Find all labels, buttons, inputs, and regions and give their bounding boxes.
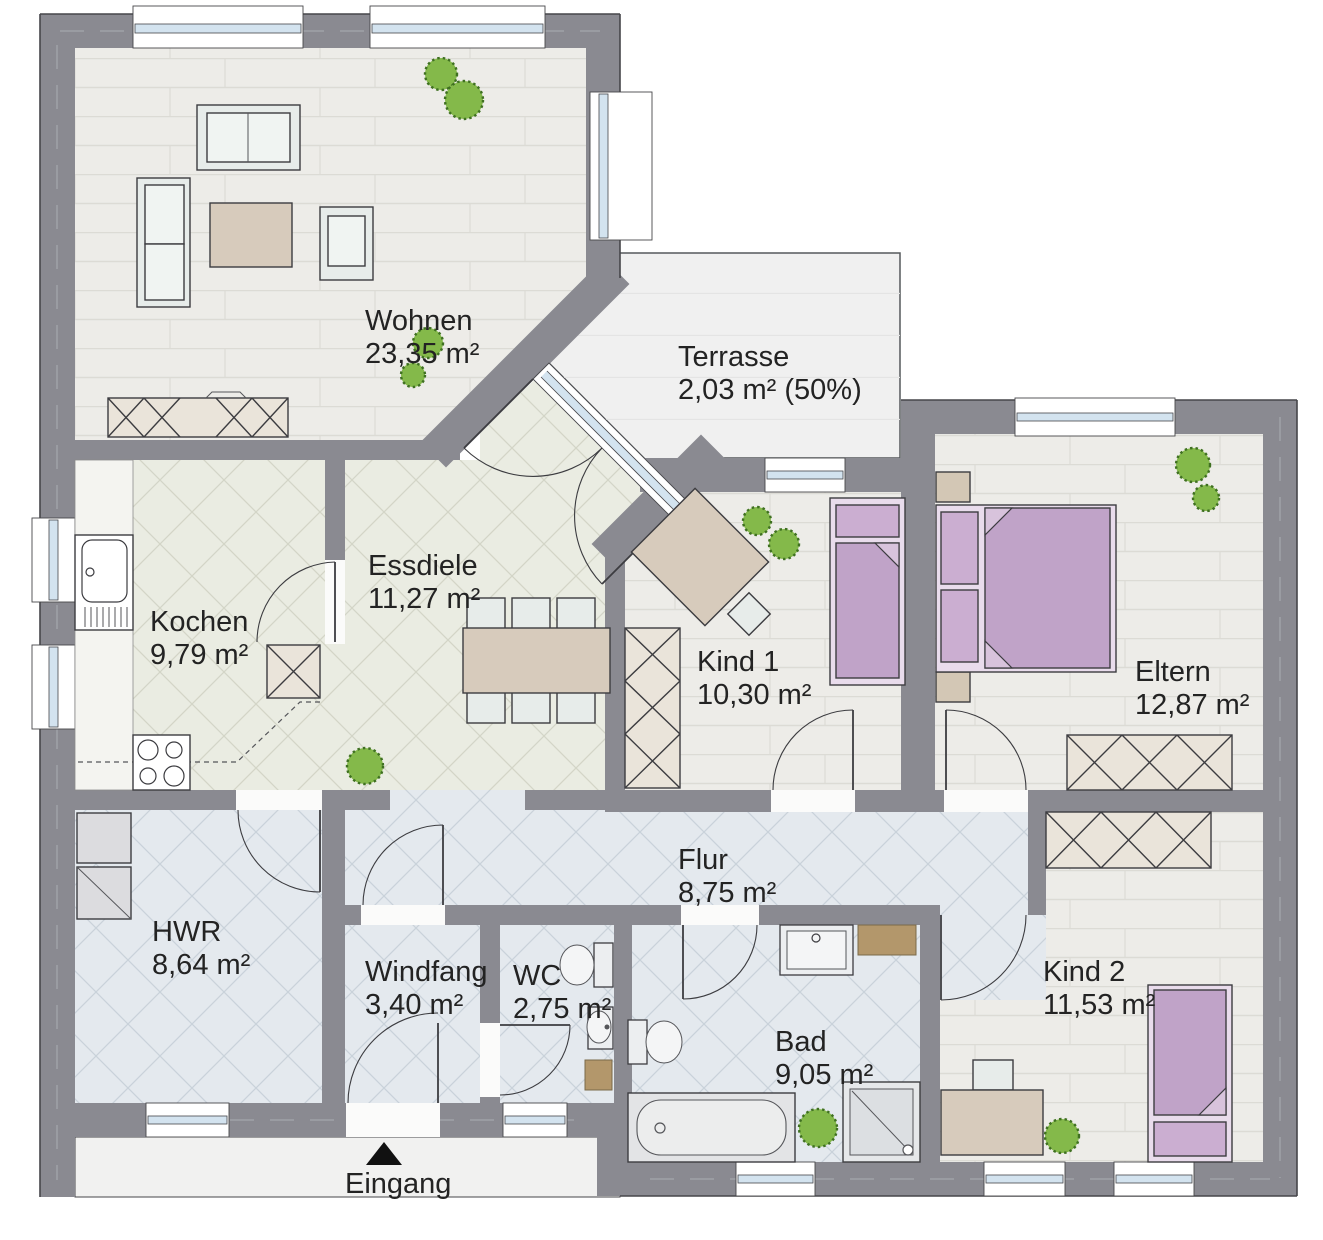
wc-toilet: [560, 943, 613, 987]
wohnen-coffee-table: [210, 203, 292, 267]
floor-plan-page: Wohnen 23,35 m² Terrasse 2,03 m² (50%) E…: [0, 0, 1323, 1240]
plant-icon: [1045, 1119, 1079, 1153]
eltern-wardrobe: [1067, 735, 1232, 790]
kind1-wardrobe: [625, 628, 680, 788]
room-area-flur: 8,75 m²: [678, 877, 777, 909]
window-wc-bottom: [503, 1103, 567, 1137]
window-wohnen-top-2: [370, 6, 545, 48]
room-area-hwr: 8,64 m²: [152, 949, 251, 981]
plant-icon: [445, 81, 483, 119]
room-label-kind2: Kind 2: [1043, 956, 1125, 988]
window-bad-bottom: [736, 1162, 815, 1196]
bad-shower: [843, 1082, 920, 1162]
room-label-wc: WC: [513, 960, 561, 992]
room-label-wohnen: Wohnen: [365, 305, 473, 337]
room-label-kochen: Kochen: [150, 606, 248, 638]
window-kind2-bottom-2: [1114, 1162, 1194, 1196]
kind2-bed: [1148, 985, 1232, 1162]
wohnen-sideboard: [108, 392, 288, 437]
room-label-windfang: Windfang: [365, 956, 488, 988]
wc-cabinet: [585, 1060, 612, 1090]
wohnen-sofa: [137, 178, 190, 307]
window-kochen-left-2: [32, 645, 75, 729]
room-area-wc: 2,75 m²: [513, 993, 612, 1025]
room-area-windfang: 3,40 m²: [365, 989, 464, 1021]
window-eltern-top: [1015, 398, 1175, 436]
entrance-label: Eingang: [345, 1168, 451, 1200]
room-area-kochen: 9,79 m²: [150, 639, 249, 671]
essdiele-table: [463, 628, 610, 693]
kind1-bed: [830, 498, 905, 685]
kochen-stove: [133, 735, 190, 790]
room-area-kind1: 10,30 m²: [697, 679, 812, 711]
room-label-terrasse: Terrasse: [678, 341, 789, 373]
window-kind1-top: [765, 458, 845, 492]
room-area-bad: 9,05 m²: [775, 1059, 874, 1091]
window-kind2-bottom-1: [984, 1162, 1065, 1196]
window-wohnen-right: [590, 92, 652, 240]
kochen-sink: [75, 535, 133, 630]
room-label-essdiele: Essdiele: [368, 550, 478, 582]
eltern-nightstand-top: [936, 472, 970, 502]
room-area-wohnen: 23,35 m²: [365, 338, 480, 370]
wohnen-armchair: [320, 207, 373, 280]
hwr-appliance-1: [77, 813, 131, 863]
room-label-kind1: Kind 1: [697, 646, 779, 678]
room-area-kind2: 11,53 m²: [1043, 989, 1156, 1021]
plant-icon: [743, 507, 771, 535]
bad-bathtub: [628, 1093, 795, 1162]
room-area-essdiele: 11,27 m²: [368, 583, 481, 615]
eltern-nightstand-bottom: [936, 672, 970, 702]
room-label-flur: Flur: [678, 844, 728, 876]
room-area-eltern: 12,87 m²: [1135, 689, 1250, 721]
window-wohnen-top-1: [133, 6, 303, 48]
plant-icon: [1193, 485, 1219, 511]
plant-icon: [769, 529, 799, 559]
bad-sink: [780, 925, 853, 975]
bad-cabinet: [858, 925, 916, 955]
plant-icon: [799, 1109, 837, 1147]
plant-icon: [1176, 448, 1210, 482]
kind2-wardrobe: [1046, 812, 1211, 868]
plant-icon: [347, 748, 383, 784]
kochen-cabinet: [267, 645, 320, 698]
eltern-bed: [936, 505, 1116, 672]
window-kochen-left-1: [32, 518, 75, 602]
hwr-appliance-2: [77, 867, 131, 919]
room-label-bad: Bad: [775, 1026, 827, 1058]
window-hwr-bottom: [146, 1103, 229, 1137]
room-label-eltern: Eltern: [1135, 656, 1211, 688]
bad-toilet: [628, 1020, 682, 1064]
wohnen-tv-board: [197, 105, 300, 170]
room-label-hwr: HWR: [152, 916, 221, 948]
floor-plan: Wohnen 23,35 m² Terrasse 2,03 m² (50%) E…: [0, 0, 1323, 1240]
room-area-terrasse: 2,03 m² (50%): [678, 374, 862, 406]
